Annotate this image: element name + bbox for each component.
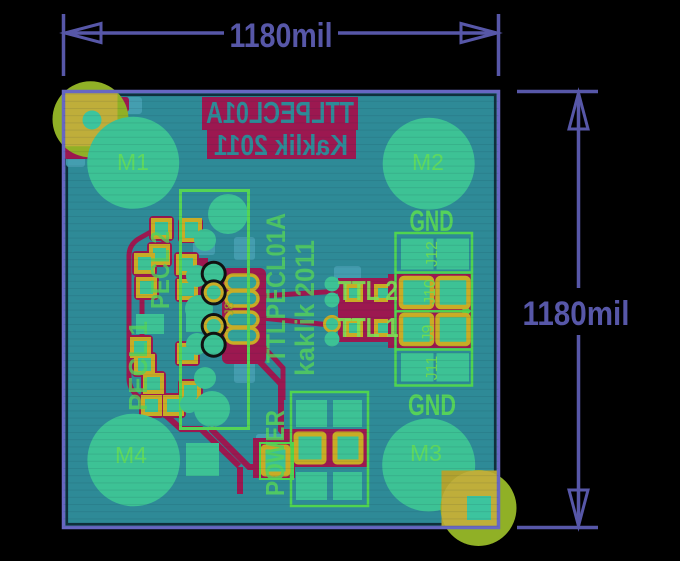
svg-text:1180mil: 1180mil (230, 17, 333, 55)
svg-text:1180mil: 1180mil (523, 295, 630, 333)
